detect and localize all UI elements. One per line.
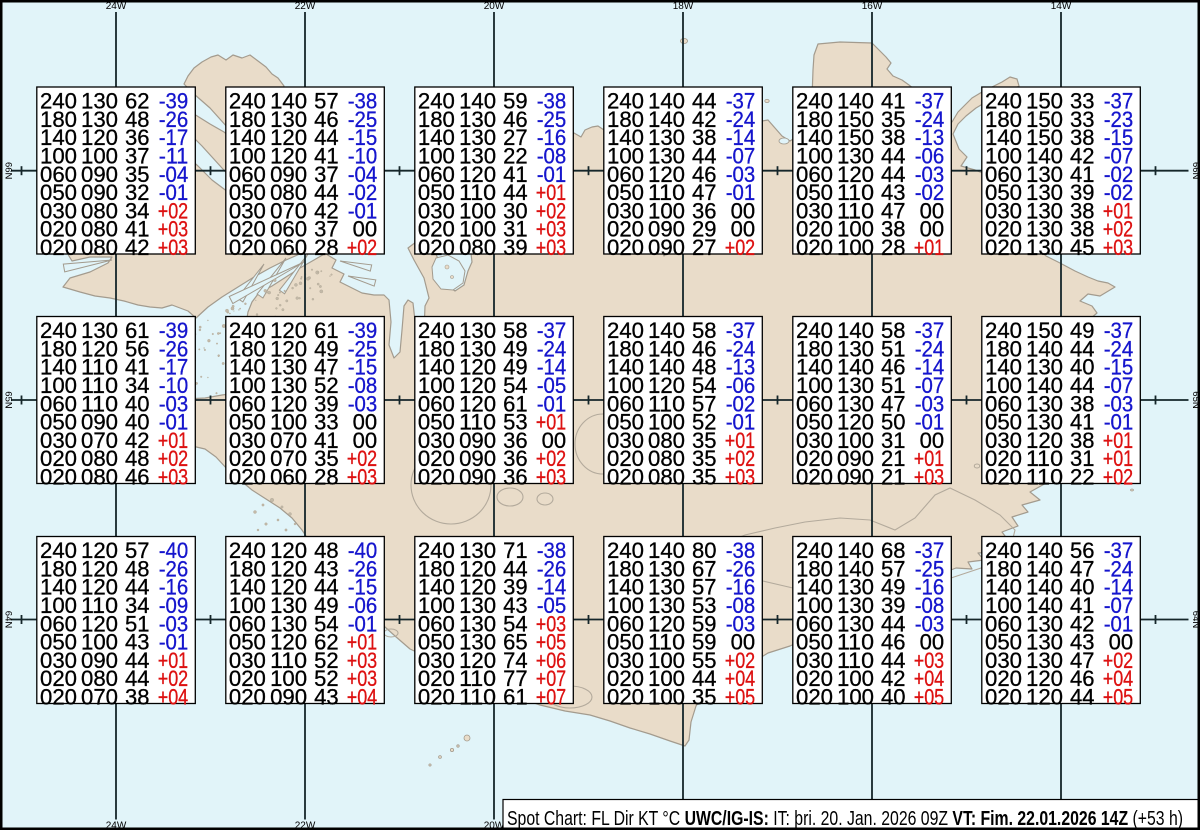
svg-text:+04: +04 [347,685,378,710]
svg-text:020: 020 [985,685,1022,710]
svg-text:020: 020 [985,235,1022,260]
svg-text:35: 35 [692,465,717,490]
svg-text:+03: +03 [725,465,756,490]
svg-text:120: 120 [1026,685,1063,710]
svg-text:020: 020 [796,465,833,490]
svg-text:28: 28 [881,235,906,260]
svg-text:020: 020 [607,235,644,260]
svg-text:020: 020 [229,465,266,490]
svg-text:18W: 18W [673,1,694,12]
svg-text:020: 020 [40,465,77,490]
svg-text:020: 020 [796,685,833,710]
svg-text:070: 070 [81,685,118,710]
svg-text:110: 110 [1026,465,1063,490]
svg-text:64N: 64N [3,611,14,629]
svg-text:39: 39 [503,235,527,260]
svg-text:45: 45 [1070,235,1095,260]
svg-text:+03: +03 [158,465,189,490]
svg-text:+05: +05 [725,685,756,710]
svg-text:+04: +04 [158,685,189,710]
svg-text:020: 020 [418,465,455,490]
svg-text:27: 27 [692,235,717,260]
svg-text:20W: 20W [484,1,505,12]
svg-text:020: 020 [40,235,77,260]
svg-text:16W: 16W [862,1,883,12]
svg-text:090: 090 [648,235,685,260]
svg-text:020: 020 [229,685,266,710]
svg-text:+03: +03 [536,465,567,490]
svg-text:+03: +03 [1103,235,1134,260]
svg-text:43: 43 [314,685,339,710]
svg-text:22W: 22W [295,1,316,12]
svg-text:130: 130 [1026,235,1063,260]
svg-text:14W: 14W [1051,1,1072,12]
svg-text:+02: +02 [347,235,378,260]
svg-text:28: 28 [314,465,339,490]
svg-text:100: 100 [648,685,685,710]
svg-text:020: 020 [418,235,455,260]
svg-text:36: 36 [503,465,527,490]
svg-text:+02: +02 [1103,465,1134,490]
svg-text:24W: 24W [106,1,127,12]
svg-text:090: 090 [459,465,496,490]
svg-text:020: 020 [985,465,1022,490]
svg-text:080: 080 [459,235,496,260]
svg-text:38: 38 [125,685,150,710]
svg-text:+03: +03 [158,235,189,260]
svg-text:020: 020 [229,235,266,260]
svg-text:100: 100 [837,685,874,710]
svg-text:44: 44 [1070,685,1095,710]
svg-text:22: 22 [1070,465,1095,490]
svg-text:+03: +03 [536,235,567,260]
svg-text:35: 35 [692,685,717,710]
svg-text:28: 28 [314,235,339,260]
svg-text:020: 020 [418,685,455,710]
svg-text:080: 080 [81,235,118,260]
svg-text:060: 060 [270,465,307,490]
svg-text:42: 42 [125,235,150,260]
svg-text:66N: 66N [3,162,14,180]
svg-text:020: 020 [607,685,644,710]
svg-text:090: 090 [837,465,874,490]
svg-text:40: 40 [881,685,906,710]
svg-text:020: 020 [607,465,644,490]
svg-text:+03: +03 [914,465,945,490]
svg-text:080: 080 [648,465,685,490]
svg-text:020: 020 [40,685,77,710]
svg-text:110: 110 [459,685,496,710]
svg-text:+07: +07 [536,685,567,710]
svg-text:+03: +03 [347,465,378,490]
svg-text:+05: +05 [914,685,945,710]
svg-text:Spot Chart: FL Dir KT °C UWC/I: Spot Chart: FL Dir KT °C UWC/IG-IS: IT: … [507,808,1183,830]
svg-text:020: 020 [796,235,833,260]
svg-text:61: 61 [503,685,527,710]
svg-text:090: 090 [270,685,307,710]
svg-text:+02: +02 [725,235,756,260]
svg-text:100: 100 [837,235,874,260]
svg-text:+01: +01 [914,235,945,260]
svg-text:060: 060 [270,235,307,260]
svg-text:080: 080 [81,465,118,490]
svg-text:+05: +05 [1103,685,1134,710]
svg-text:21: 21 [881,465,906,490]
svg-text:65N: 65N [3,391,14,409]
svg-text:46: 46 [125,465,150,490]
